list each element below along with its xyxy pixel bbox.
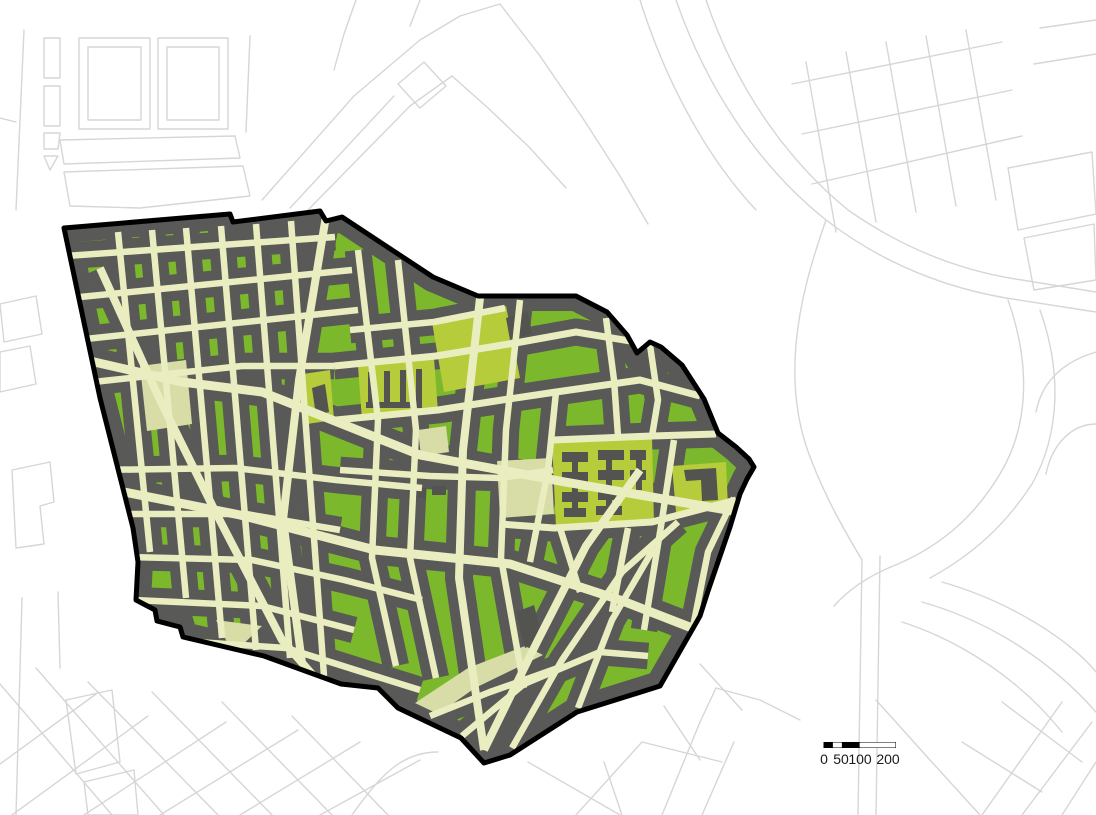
- context-road: [44, 38, 60, 78]
- context-road: [1006, 298, 1096, 312]
- scale-label-100: 100: [848, 751, 872, 767]
- context-road: [0, 118, 16, 122]
- context-road: [902, 622, 1062, 732]
- context-road: [44, 133, 60, 149]
- context-road: [36, 668, 164, 815]
- context-road: [966, 30, 996, 200]
- context-road: [706, 0, 1022, 280]
- building-bar: [416, 369, 422, 405]
- context-road: [240, 742, 360, 815]
- context-road: [222, 702, 332, 815]
- context-road: [812, 462, 862, 560]
- context-road: [44, 156, 58, 170]
- context-road: [246, 36, 250, 132]
- scale-bar-segment: [824, 743, 833, 748]
- building-bar: [400, 370, 406, 406]
- context-road: [886, 42, 916, 212]
- context-road: [292, 716, 388, 815]
- context-road: [58, 592, 60, 668]
- scale-bar-segment: [833, 743, 842, 748]
- context-road: [1062, 762, 1096, 815]
- scale-label-0: 0: [820, 751, 828, 767]
- city-district-map: 0 50 100 200: [0, 0, 1096, 815]
- context-road: [1046, 424, 1096, 474]
- context-road: [290, 96, 394, 208]
- building-hall: [432, 486, 446, 495]
- scale-bar: [824, 743, 896, 748]
- context-road: [12, 716, 148, 815]
- building-spine: [606, 450, 612, 510]
- context-road: [930, 310, 1055, 578]
- context-road: [262, 62, 394, 200]
- context-road: [642, 742, 722, 762]
- context-road: [982, 702, 1062, 815]
- context-road: [716, 688, 800, 720]
- context-road: [942, 582, 1096, 672]
- context-road: [858, 560, 862, 815]
- context-road: [1040, 20, 1096, 28]
- context-road: [834, 564, 898, 606]
- context-road: [334, 0, 356, 70]
- context-road: [1034, 54, 1096, 64]
- context-road: [876, 556, 880, 815]
- context-road: [88, 682, 218, 815]
- context-road: [500, 4, 648, 224]
- context-road: [795, 220, 826, 462]
- context-road: [12, 462, 54, 548]
- context-road: [0, 346, 36, 392]
- context-road: [702, 742, 734, 815]
- context-road: [640, 0, 756, 210]
- context-road: [452, 76, 566, 188]
- context-road: [394, 4, 500, 62]
- context-road: [926, 36, 956, 206]
- scale-label-50: 50: [833, 751, 849, 767]
- context-road: [158, 38, 228, 129]
- context-road: [700, 664, 742, 710]
- context-road: [1022, 722, 1092, 815]
- context-road: [60, 136, 240, 164]
- scale-bar-segment: [860, 743, 896, 748]
- context-road: [812, 136, 1022, 184]
- context-road: [160, 730, 298, 815]
- context-road: [898, 300, 1024, 564]
- context-road: [846, 52, 876, 222]
- building-bar: [384, 371, 390, 407]
- context-road: [152, 692, 272, 815]
- context-road: [1008, 152, 1096, 230]
- context-road: [0, 694, 96, 764]
- context-road: [1036, 352, 1096, 412]
- scale-bar-segment: [842, 743, 860, 748]
- context-road: [962, 742, 1042, 792]
- context-road: [0, 296, 42, 342]
- context-road: [79, 38, 150, 129]
- context-road: [16, 30, 24, 210]
- context-road: [88, 47, 141, 120]
- context-road: [922, 602, 1096, 712]
- context-road: [320, 760, 420, 815]
- scale-label-200: 200: [876, 751, 900, 767]
- context-road: [1024, 224, 1096, 290]
- context-road: [64, 166, 250, 208]
- context-road: [44, 86, 60, 126]
- context-road: [352, 752, 438, 815]
- context-road: [1002, 702, 1082, 762]
- context-road: [676, 0, 1006, 298]
- context-road: [662, 688, 716, 815]
- context-road: [306, 76, 452, 212]
- map-stage: 0 50 100 200: [0, 0, 1096, 815]
- context-road: [16, 598, 22, 815]
- context-road: [66, 690, 120, 774]
- context-road: [410, 0, 420, 26]
- context-road: [792, 42, 1002, 84]
- context-road: [167, 47, 219, 120]
